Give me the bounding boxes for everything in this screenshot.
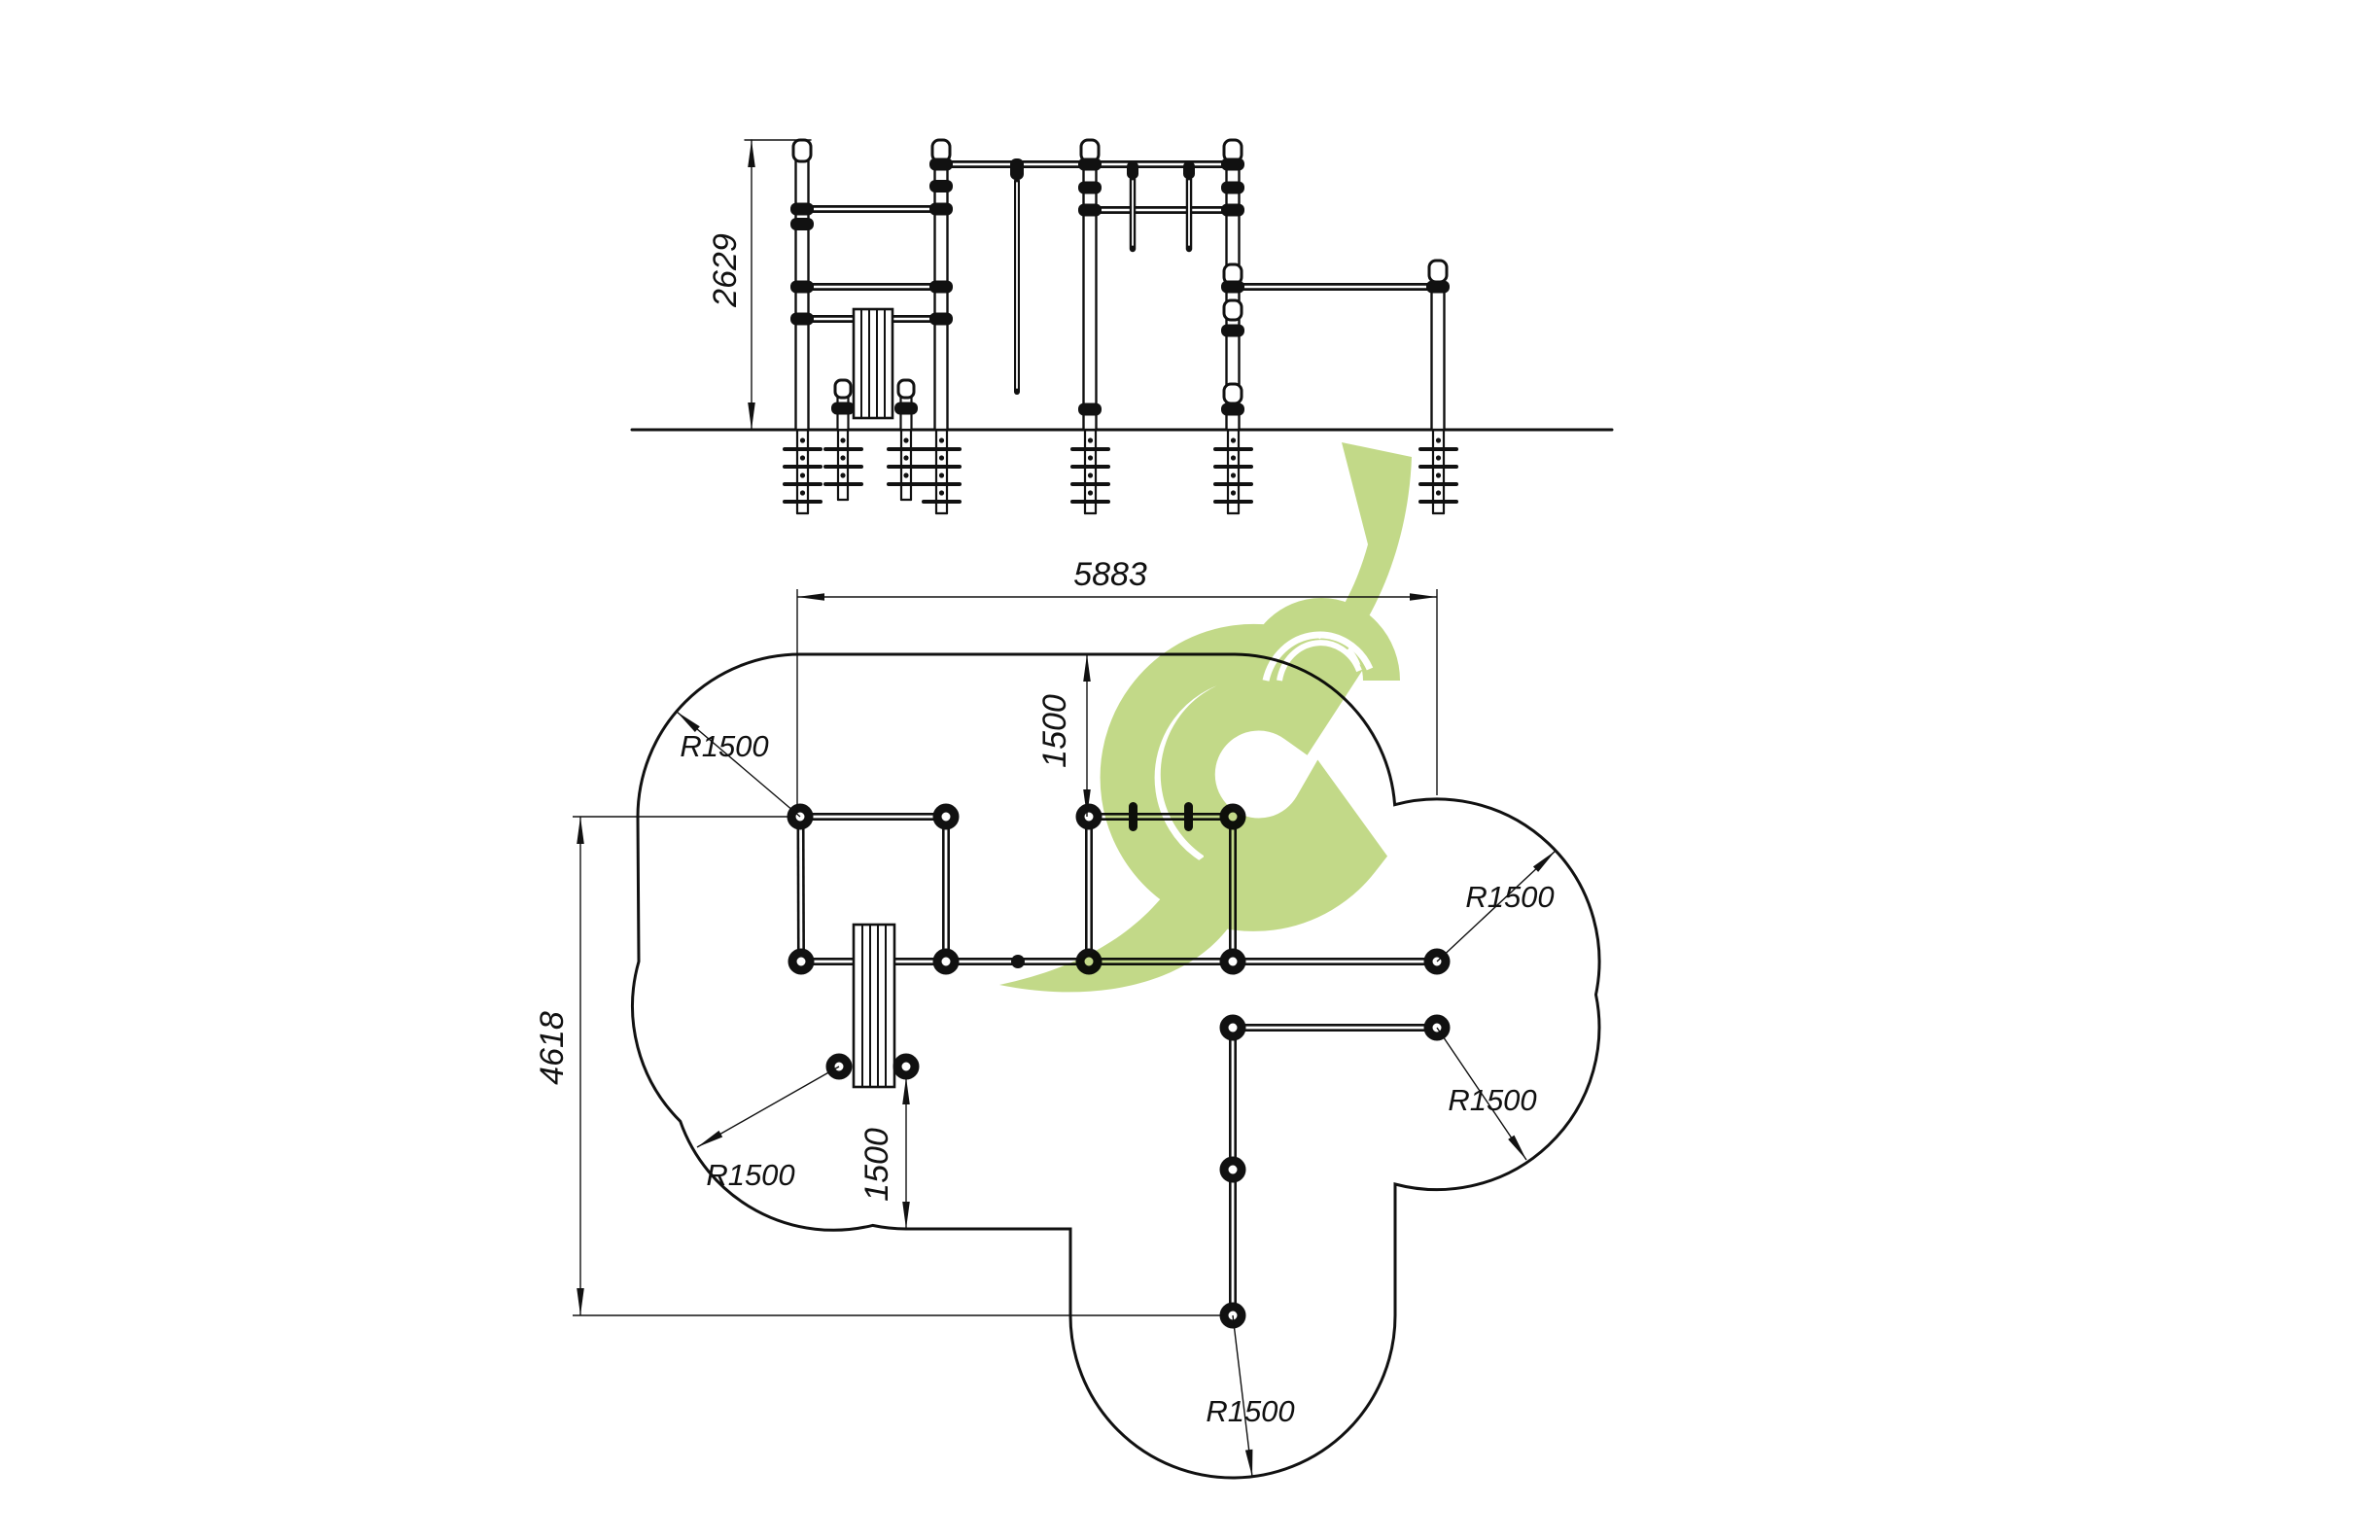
bench-plan: [854, 925, 894, 1087]
rope-joint-dot: [1011, 955, 1025, 968]
dim-5883-text: 5883: [1073, 556, 1147, 593]
dim-4618-text: 4618: [534, 1011, 571, 1085]
dim-1500-top-text: 1500: [1036, 694, 1073, 768]
drawing-sheet: 2629: [0, 0, 2380, 1540]
elevation-view: 2629: [632, 140, 1612, 513]
bench-elevation: [854, 309, 892, 418]
radius-right-lower-text: R1500: [1448, 1083, 1536, 1117]
dimension-1500-top: 1500: [1036, 654, 1087, 817]
radius-bench-text: R1500: [706, 1158, 794, 1192]
hanging-rungs: [1127, 161, 1195, 249]
radius-right-upper-text: R1500: [1465, 880, 1554, 914]
dim-1500-bottom-text: 1500: [858, 1128, 895, 1202]
plan-view: 5883 1500 4618 1500 R1500 R1500 R1500: [534, 556, 1599, 1478]
radius-top-left-text: R1500: [680, 729, 768, 763]
radius-bottom-text: R1500: [1206, 1394, 1294, 1428]
dimension-1500-bottom: 1500: [858, 1077, 906, 1229]
dim-2629-text: 2629: [707, 233, 744, 308]
climbing-rope: [1010, 158, 1024, 392]
elevation-bars: [802, 164, 1438, 319]
technical-drawing: 2629: [0, 0, 2380, 1540]
